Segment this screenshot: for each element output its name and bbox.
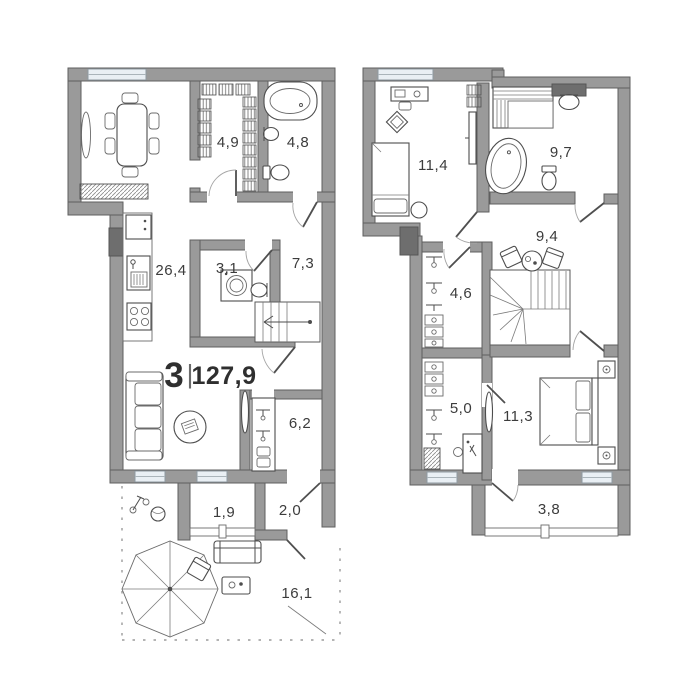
- room-area-label: 2,0: [279, 502, 301, 519]
- hall-table-icon: [522, 251, 542, 271]
- vanity-icon: [454, 434, 483, 473]
- terrace-table-icon: [222, 577, 250, 594]
- tv-icon: [82, 112, 91, 158]
- ball-icon: [151, 507, 165, 521]
- toilet-icon: [263, 165, 289, 180]
- desk-icon: [391, 87, 428, 110]
- closet-62-icon: [252, 398, 275, 471]
- bath-sink-icon: [264, 127, 279, 141]
- stove-icon: [127, 303, 151, 330]
- kitchen-sink-icon: [127, 256, 150, 290]
- room-area-label: 4,6: [450, 285, 472, 302]
- hall-chair-right-icon: [542, 247, 564, 269]
- room-area-label: 3,8: [538, 501, 560, 518]
- stairs-floor1: [255, 302, 320, 342]
- floorplan-canvas: 4,9 4,8 26,4 3,1 7,3 6,2 1,9 2,0 16,1 11…: [0, 0, 700, 700]
- room-area-label: 3,1: [216, 260, 238, 277]
- room-area-label: 4,9: [217, 134, 239, 151]
- toilet2-icon: [542, 166, 556, 190]
- apartment-summary: 3 | 127,9: [164, 356, 256, 395]
- radiator-icon: [80, 184, 148, 199]
- nightstand-top-icon: [598, 361, 615, 378]
- floorplan-svg: 4,9 4,8 26,4 3,1 7,3 6,2 1,9 2,0 16,1 11…: [0, 0, 700, 700]
- terrace-sofa-icon: [214, 541, 261, 563]
- bathtub-icon: [264, 82, 317, 120]
- rooms-count-label: 3: [164, 356, 183, 395]
- wardrobe-46-icons: [425, 257, 443, 347]
- balcony-railing-19: [190, 525, 255, 538]
- room-area-label: 9,7: [550, 144, 572, 161]
- round-table-icon: [174, 411, 206, 443]
- room-area-label: 11,4: [418, 157, 448, 174]
- bed-single-icon: [372, 143, 409, 216]
- scooter-icon: [130, 496, 149, 513]
- sofa-icon: [126, 372, 163, 460]
- bath-sink2-icon: [559, 95, 579, 110]
- balcony-railing-38: [485, 525, 618, 538]
- wardrobe-50-icons: [424, 362, 443, 469]
- room-area-label: 6,2: [289, 415, 311, 432]
- total-area-label: 127,9: [191, 362, 256, 390]
- room-area-label: 5,0: [450, 400, 472, 417]
- fridge-icon: [126, 215, 151, 239]
- laundry-sink-icon: [251, 283, 267, 297]
- room-area-label: 16,1: [281, 585, 312, 602]
- stairs-floor2: [490, 270, 570, 345]
- mirror-icon: [242, 391, 249, 433]
- room-area-label: 4,8: [287, 134, 309, 151]
- hall-chair-left-icon: [500, 246, 523, 269]
- umbrella-icon: [122, 541, 218, 637]
- sauna-bench-icon: [493, 87, 553, 128]
- room-area-label: 7,3: [292, 255, 314, 272]
- room-area-label: 1,9: [213, 504, 235, 521]
- ball2-icon: [411, 202, 427, 218]
- bed-double-icon: [540, 378, 598, 445]
- room-area-label: 11,3: [503, 408, 533, 425]
- room-area-label: 26,4: [155, 262, 186, 279]
- vent-shaft-floor2: [400, 227, 418, 255]
- picture-frame-icon: [386, 111, 407, 132]
- mirror2-icon: [486, 392, 493, 432]
- dining-table-icon: [105, 93, 159, 177]
- vent-shaft-floor1: [109, 228, 124, 256]
- room-area-label: 9,4: [536, 228, 558, 245]
- nightstand-bottom-icon: [598, 447, 615, 464]
